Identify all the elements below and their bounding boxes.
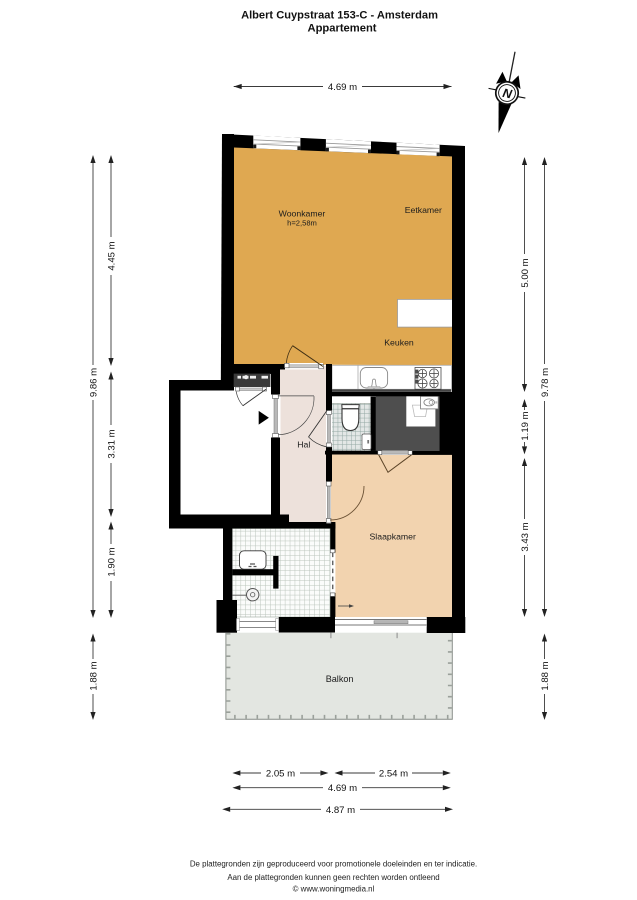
svg-text:Balkon: Balkon [326,674,354,684]
svg-text:Albert Cuypstraat 153-C - Amst: Albert Cuypstraat 153-C - Amsterdam [241,10,438,22]
svg-text:4.87 m: 4.87 m [326,805,355,816]
svg-text:Hal: Hal [297,440,310,450]
svg-text:1.88 m: 1.88 m [89,661,100,690]
svg-text:Woonkamer: Woonkamer [279,209,326,219]
svg-text:Eetkamer: Eetkamer [405,205,442,215]
svg-text:2.05 m: 2.05 m [266,769,295,780]
svg-text:4.69 m: 4.69 m [328,783,357,794]
svg-text:9.78 m: 9.78 m [540,368,551,397]
svg-text:3.43 m: 3.43 m [520,522,531,551]
svg-text:De plattegronden zijn geproduc: De plattegronden zijn geproduceerd voor … [190,859,477,868]
svg-text:4.45 m: 4.45 m [107,241,118,270]
svg-text:1.90 m: 1.90 m [107,547,118,576]
svg-text:2.54 m: 2.54 m [379,769,408,780]
svg-text:5.00 m: 5.00 m [520,258,531,287]
svg-text:1.19 m: 1.19 m [520,411,531,440]
svg-text:4.69 m: 4.69 m [328,82,357,93]
svg-text:Appartement: Appartement [308,23,377,35]
svg-text:Slaapkamer: Slaapkamer [370,532,416,542]
svg-text:© www.woningmedia.nl: © www.woningmedia.nl [293,885,375,894]
svg-text:h=2,58m: h=2,58m [287,219,317,228]
svg-text:1.88 m: 1.88 m [540,661,551,690]
svg-text:9.86 m: 9.86 m [89,368,100,397]
svg-text:Aan de plattegronden kunnen ge: Aan de plattegronden kunnen geen rechten… [227,873,439,882]
svg-text:3.31 m: 3.31 m [107,429,118,458]
svg-text:Keuken: Keuken [384,338,414,348]
